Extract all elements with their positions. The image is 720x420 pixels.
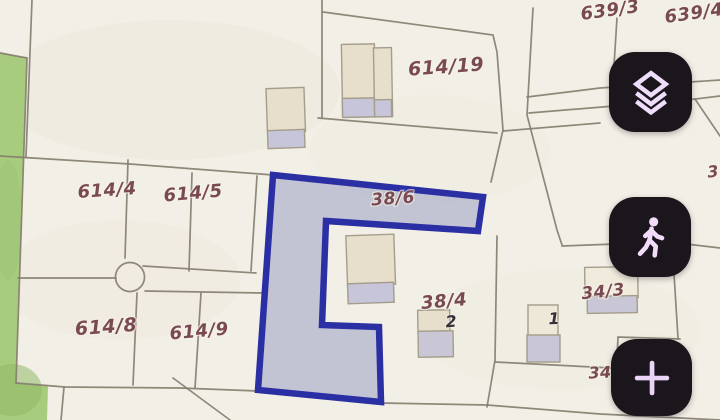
parcel-label-3-partial: 3 (706, 161, 720, 181)
plus-icon (629, 355, 675, 401)
zoom-in-button[interactable] (611, 339, 692, 416)
parcel-label-34-partial: 34 (588, 362, 612, 382)
map-screen: 639/3 639/4 614/19 614/4 614/5 38/6 38/4… (0, 0, 720, 420)
walk-mode-button[interactable] (609, 197, 691, 277)
layers-icon (628, 69, 674, 115)
parcel-label-38-6: 38/6 (371, 187, 416, 210)
pedestrian-icon (627, 214, 673, 260)
building (346, 234, 396, 304)
building (266, 87, 306, 148)
building (341, 44, 392, 118)
house-number-2: 2 (445, 312, 457, 332)
house-number-1: 1 (548, 309, 560, 328)
parcel-label-38-4: 38/4 (420, 289, 468, 314)
layers-button[interactable] (609, 52, 692, 132)
parcel-label-614-4: 614/4 (77, 178, 137, 203)
parcel-label-614-8: 614/8 (74, 314, 138, 340)
